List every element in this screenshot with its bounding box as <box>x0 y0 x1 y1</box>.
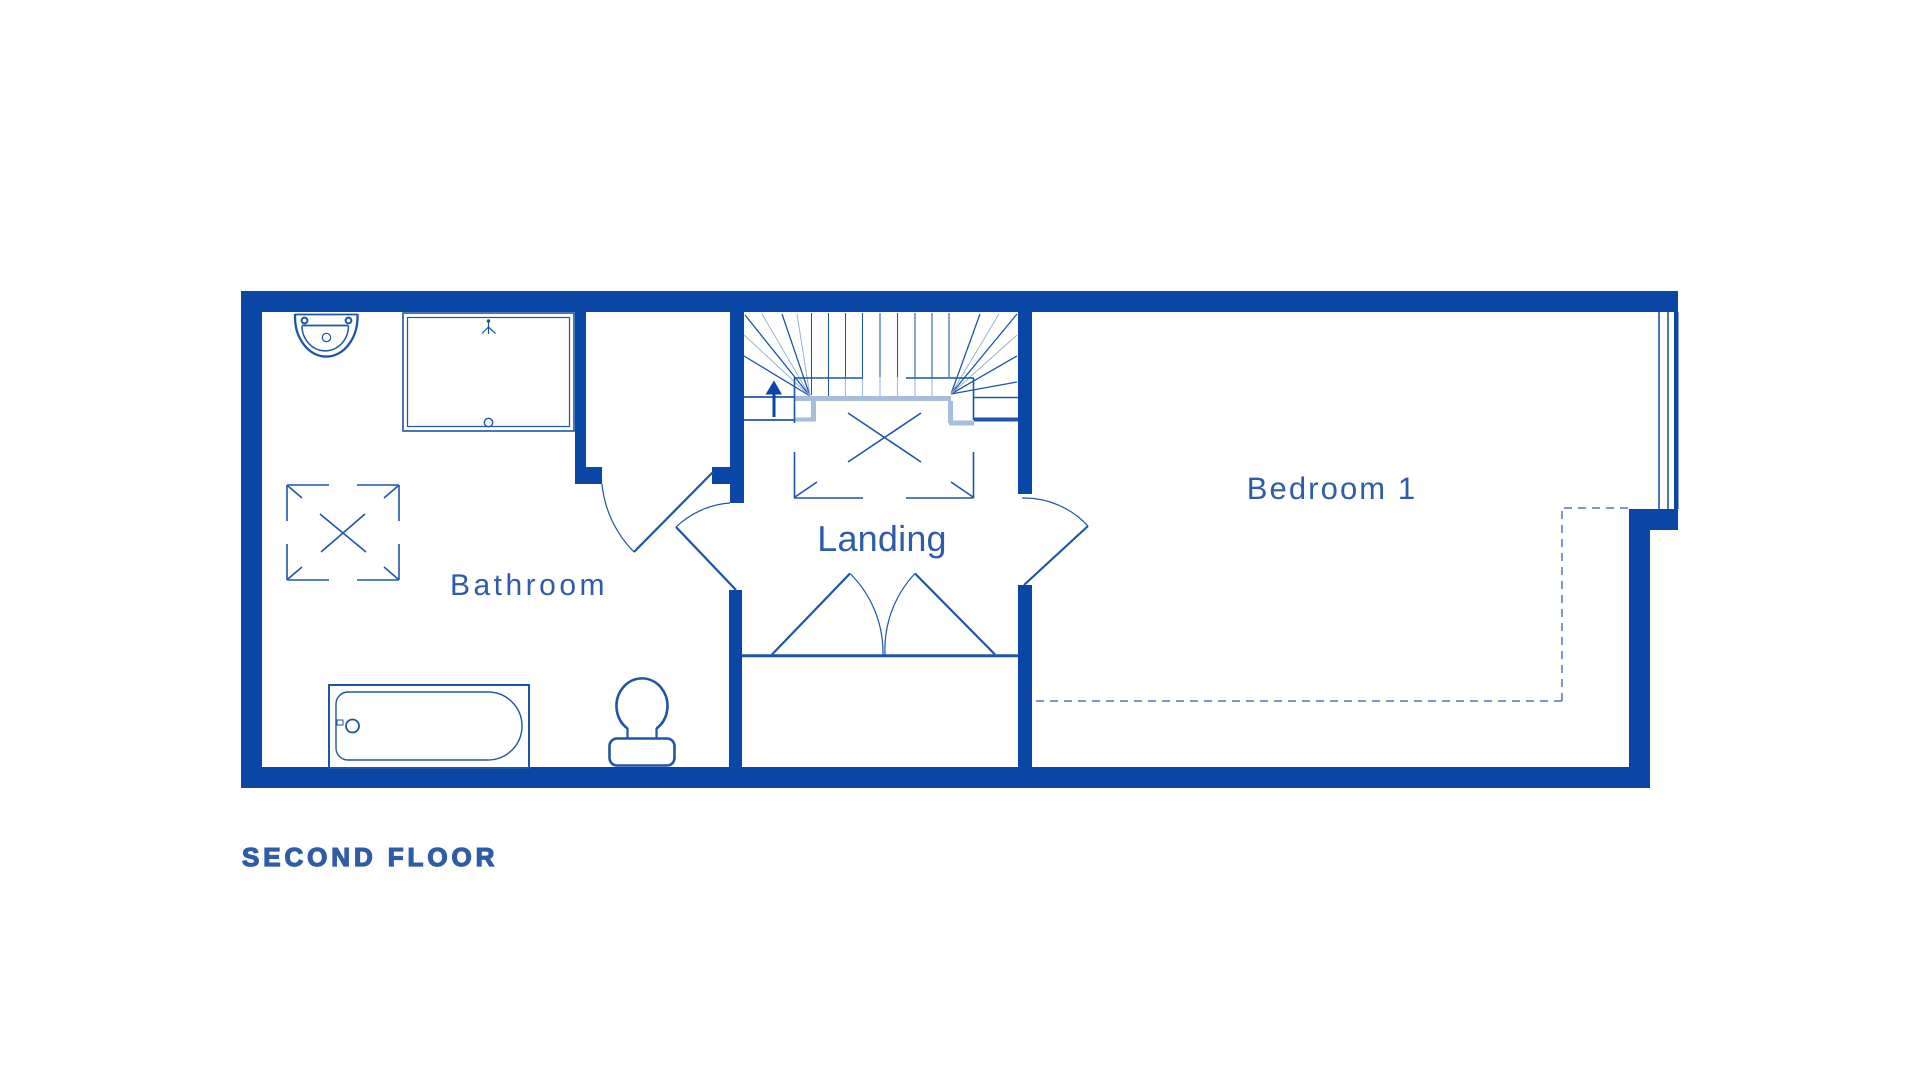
svg-text:SECOND FLOOR: SECOND FLOOR <box>242 842 498 872</box>
svg-text:Bathroom: Bathroom <box>450 569 608 602</box>
svg-text:Bedroom 1: Bedroom 1 <box>1247 471 1418 506</box>
svg-text:Landing: Landing <box>817 518 947 559</box>
